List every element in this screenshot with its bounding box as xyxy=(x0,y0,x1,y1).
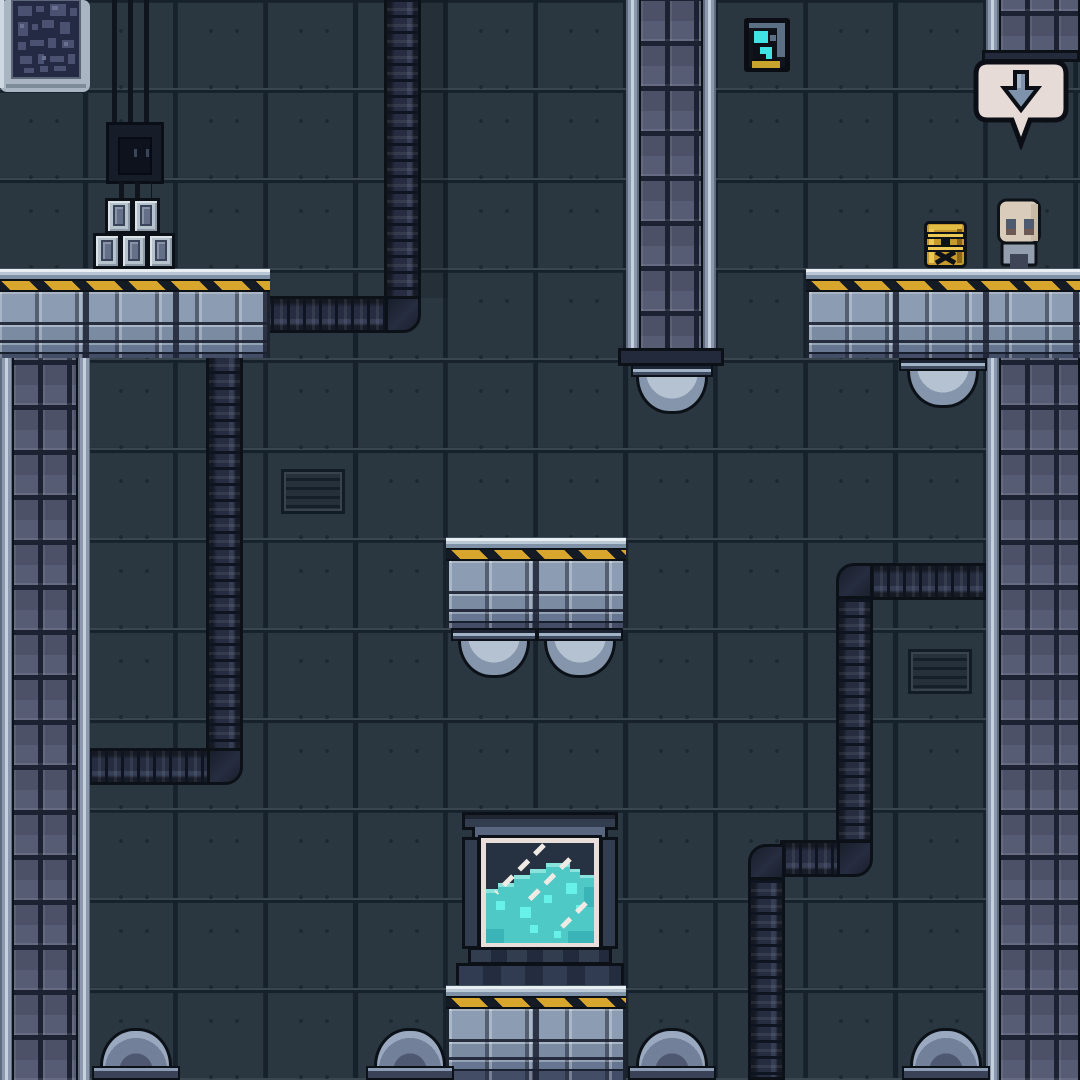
screen-pickup-graphic xyxy=(744,18,790,72)
circuit-panel-graphic xyxy=(0,0,90,92)
center-pillar-edge-right xyxy=(703,0,716,356)
dome-base xyxy=(628,1066,716,1080)
vent-right xyxy=(908,649,972,694)
right-platform-dome-lamp xyxy=(899,358,987,408)
platform-top-left xyxy=(0,268,270,358)
pipe-right-elbow-top xyxy=(836,563,873,600)
dome-mount-bar xyxy=(451,628,537,641)
screen-pickup[interactable] xyxy=(744,18,790,72)
dome-mount-bar xyxy=(631,364,713,377)
liquid-tank[interactable] xyxy=(450,810,630,990)
dome-cup xyxy=(636,1028,708,1066)
speech-bubble-graphic xyxy=(972,58,1070,150)
hazard-stripe xyxy=(446,996,626,1009)
pipe-left-vertical-mid xyxy=(206,320,243,752)
platform-bricks xyxy=(806,292,1080,358)
dome-cup xyxy=(907,371,979,408)
stub-rocks xyxy=(999,0,1080,56)
dome-cup xyxy=(910,1028,982,1066)
hazard-stripe xyxy=(806,279,1080,292)
center-pillar-rocks xyxy=(639,0,703,356)
robot-character[interactable] xyxy=(995,198,1043,268)
floor-dome-lamp xyxy=(902,1028,990,1080)
pipe-right-vertical-mid xyxy=(836,596,873,844)
barrel-graphic xyxy=(924,221,967,268)
pipe-right-vertical-bottom xyxy=(748,877,785,1080)
tank-glass xyxy=(478,835,602,951)
tank-liquid-graphic xyxy=(486,843,594,943)
stub-edge-left xyxy=(986,0,999,56)
dome-mount-bar xyxy=(537,628,623,641)
pipe-left-vertical-top xyxy=(384,0,421,300)
pillar-stub-top-right xyxy=(986,0,1080,56)
crate-panel xyxy=(101,240,113,261)
pipe-left-elbow-top xyxy=(384,296,421,333)
platform-right xyxy=(806,268,1080,358)
middle-dome-lamp-left xyxy=(451,628,537,681)
platform-bricks xyxy=(0,292,270,358)
platform-top-strip xyxy=(806,268,1080,279)
hazard-stripe xyxy=(0,279,270,292)
platform-top-strip xyxy=(446,985,626,996)
left-pillar-edge-left xyxy=(0,358,12,1080)
center-pillar xyxy=(626,0,716,356)
middle-dome-lamp-right xyxy=(537,628,623,681)
dome-base xyxy=(92,1066,180,1080)
floor-dome-lamp xyxy=(366,1028,454,1080)
left-pillar-rocks xyxy=(12,358,78,1080)
hazard-stripe xyxy=(446,548,626,561)
crate-panel xyxy=(155,240,167,261)
robot-character-graphic xyxy=(995,198,1043,268)
crate xyxy=(132,198,160,234)
left-pillar-edge-right xyxy=(78,358,90,1080)
platform-top-strip xyxy=(446,537,626,548)
dome-base xyxy=(902,1066,990,1080)
pipe-right-horizontal-top xyxy=(868,563,990,600)
pipe-right-elbow-jog xyxy=(836,840,873,877)
left-pillar xyxy=(0,358,90,1080)
dome-cup xyxy=(636,377,708,414)
crate-panel xyxy=(113,205,125,226)
wall-shadow xyxy=(421,0,448,298)
junction-box xyxy=(106,122,164,184)
game-viewport xyxy=(0,0,1080,1080)
floor-dome-lamp xyxy=(92,1028,180,1080)
crate xyxy=(105,198,133,234)
crate xyxy=(147,233,175,269)
crate-panel xyxy=(128,240,140,261)
dome-cup xyxy=(544,641,616,678)
dome-cup xyxy=(458,641,530,678)
circuit-panel xyxy=(0,0,90,92)
junction-box-slot xyxy=(118,137,152,175)
crate xyxy=(120,233,148,269)
platform-bottom xyxy=(446,985,626,1080)
floor-dome-lamp xyxy=(628,1028,716,1080)
dome-cup xyxy=(100,1028,172,1066)
center-pillar-edge-left xyxy=(626,0,639,356)
dome-base xyxy=(366,1066,454,1080)
right-pillar xyxy=(986,358,1080,1080)
platform-top-strip xyxy=(0,268,270,279)
dome-cup xyxy=(374,1028,446,1066)
right-pillar-edge-left xyxy=(986,358,999,1080)
right-pillar-rocks xyxy=(999,358,1080,1080)
crate xyxy=(93,233,121,269)
speech-bubble-prompt[interactable] xyxy=(972,58,1070,150)
platform-bricks xyxy=(446,561,626,628)
cable-bundle xyxy=(112,0,159,124)
pipe-left-elbow-bottom xyxy=(206,748,243,785)
pipe-left-horizontal-bottom xyxy=(86,748,210,785)
platform-bricks xyxy=(446,1009,626,1080)
pipe-right-horizontal-jog xyxy=(780,840,840,877)
tank-column-right xyxy=(600,837,618,949)
tank-glass-inner xyxy=(486,843,594,943)
barrel[interactable] xyxy=(924,221,967,268)
center-pillar-dome-lamp xyxy=(631,364,713,414)
dome-mount-bar xyxy=(899,358,987,371)
vent-left xyxy=(281,469,345,514)
crate-panel xyxy=(140,205,152,226)
pipe-right-elbow-down xyxy=(748,844,785,881)
platform-middle xyxy=(446,537,626,628)
